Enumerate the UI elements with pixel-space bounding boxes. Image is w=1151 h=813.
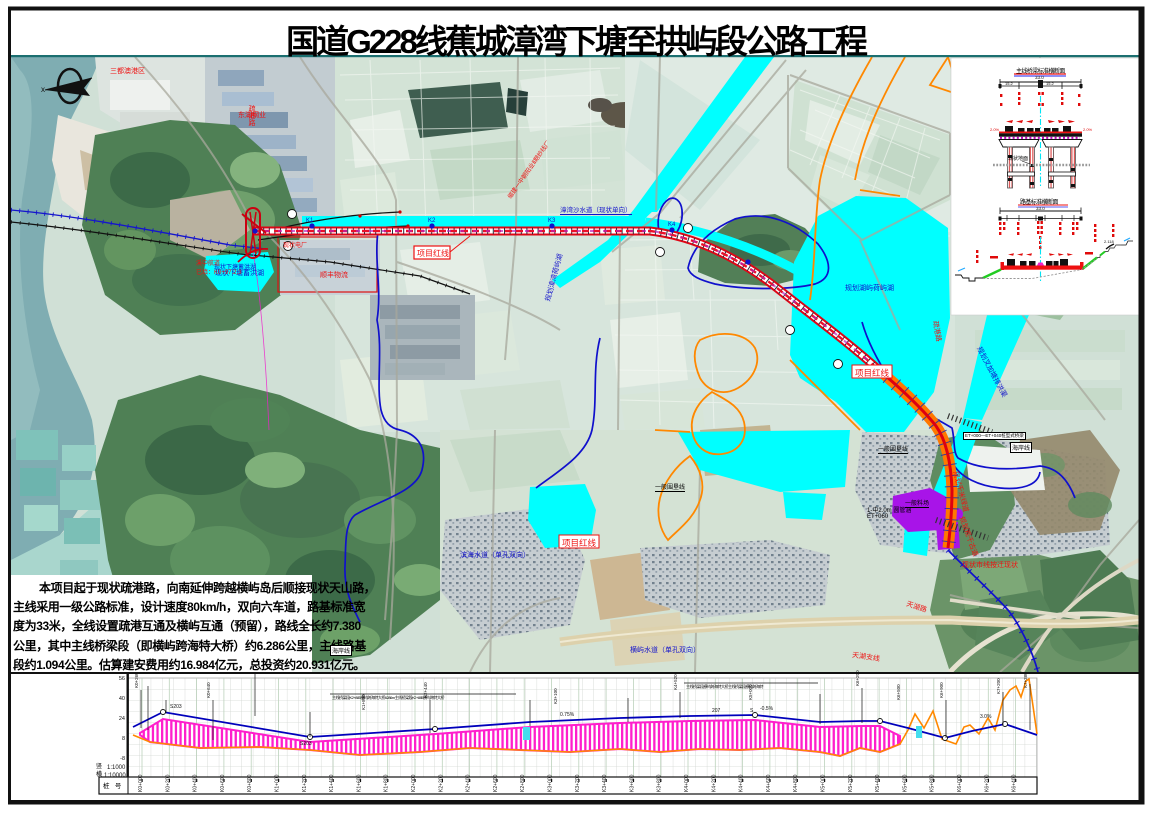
svg-text:K6+000: K6+000 <box>957 774 963 792</box>
svg-text:K4: K4 <box>668 222 676 228</box>
svg-text:K6+200: K6+200 <box>855 670 860 686</box>
svg-text:K3+600: K3+600 <box>629 774 635 792</box>
svg-text:K0+000: K0+000 <box>138 774 144 792</box>
svg-text:K6+900: K6+900 <box>939 682 944 698</box>
svg-text:K0+200: K0+200 <box>165 774 171 792</box>
svg-text:K2+800: K2+800 <box>520 774 526 792</box>
svg-text:K0+640: K0+640 <box>206 682 211 698</box>
svg-text:K4+600: K4+600 <box>766 774 772 792</box>
svg-text:56: 56 <box>119 676 125 682</box>
svg-text:K2+000: K2+000 <box>411 774 417 792</box>
svg-text:2.118: 2.118 <box>1104 239 1114 244</box>
svg-text:K2+200: K2+200 <box>438 774 444 792</box>
svg-text:K1+600: K1+600 <box>356 774 362 792</box>
svg-text:K1+200: K1+200 <box>302 774 308 792</box>
svg-text:2.0%: 2.0% <box>990 127 1000 132</box>
svg-text:K4+400: K4+400 <box>739 774 745 792</box>
svg-text:K3+800: K3+800 <box>657 774 663 792</box>
svg-text:24: 24 <box>119 716 125 722</box>
svg-text:15.2: 15.2 <box>1046 81 1055 86</box>
svg-text:K5+000: K5+000 <box>821 774 827 792</box>
svg-text:K3+200: K3+200 <box>575 774 581 792</box>
svg-text:K4+520: K4+520 <box>673 674 678 690</box>
svg-text:K4+000: K4+000 <box>684 774 690 792</box>
svg-text:1:1000: 1:1000 <box>107 765 126 771</box>
svg-text:K5+600: K5+600 <box>902 774 908 792</box>
svg-text:K3+000: K3+000 <box>548 774 554 792</box>
svg-text:K1+000: K1+000 <box>275 774 281 792</box>
svg-text:8: 8 <box>122 736 125 742</box>
svg-text:-8: -8 <box>120 756 125 762</box>
svg-text:S203: S203 <box>300 741 312 747</box>
svg-text:K2: K2 <box>428 218 436 224</box>
svg-text:K3+400: K3+400 <box>602 774 608 792</box>
svg-text:K5+800: K5+800 <box>930 774 936 792</box>
svg-text:K1+800: K1+800 <box>384 774 390 792</box>
svg-text:2.0%: 2.0% <box>1083 127 1093 132</box>
svg-text:K1+400: K1+400 <box>329 774 335 792</box>
svg-text:S203: S203 <box>170 704 182 710</box>
svg-text:40: 40 <box>119 696 125 702</box>
svg-text:K6+400: K6+400 <box>1012 774 1018 792</box>
svg-text:K7+200: K7+200 <box>996 678 1001 694</box>
svg-text:K6+200: K6+200 <box>984 774 990 792</box>
svg-text:K3+100: K3+100 <box>553 688 558 704</box>
svg-text:K2+600: K2+600 <box>493 774 499 792</box>
svg-text:15.2: 15.2 <box>1005 81 1014 86</box>
svg-text:K1: K1 <box>306 218 314 224</box>
svg-text:K6+500: K6+500 <box>896 684 901 700</box>
svg-text:x: x <box>41 85 45 94</box>
svg-text:K0+800: K0+800 <box>247 774 253 792</box>
svg-text:K4+800: K4+800 <box>793 774 799 792</box>
svg-text:K7+380: K7+380 <box>1023 672 1028 688</box>
svg-text:K4+200: K4+200 <box>711 774 717 792</box>
svg-text:33.0: 33.0 <box>1036 206 1045 211</box>
svg-text:K5+200: K5+200 <box>848 774 854 792</box>
svg-text:K5+400: K5+400 <box>875 774 881 792</box>
svg-text:3.0%: 3.0% <box>980 714 992 720</box>
svg-text:K0+600: K0+600 <box>220 774 226 792</box>
svg-text:K2+400: K2+400 <box>466 774 472 792</box>
svg-text:33.0: 33.0 <box>1035 75 1044 80</box>
svg-text:K0+400: K0+400 <box>193 774 199 792</box>
svg-text:-0.5%: -0.5% <box>760 706 774 712</box>
svg-text:K3: K3 <box>548 218 556 224</box>
svg-text:0.75%: 0.75% <box>560 712 575 718</box>
